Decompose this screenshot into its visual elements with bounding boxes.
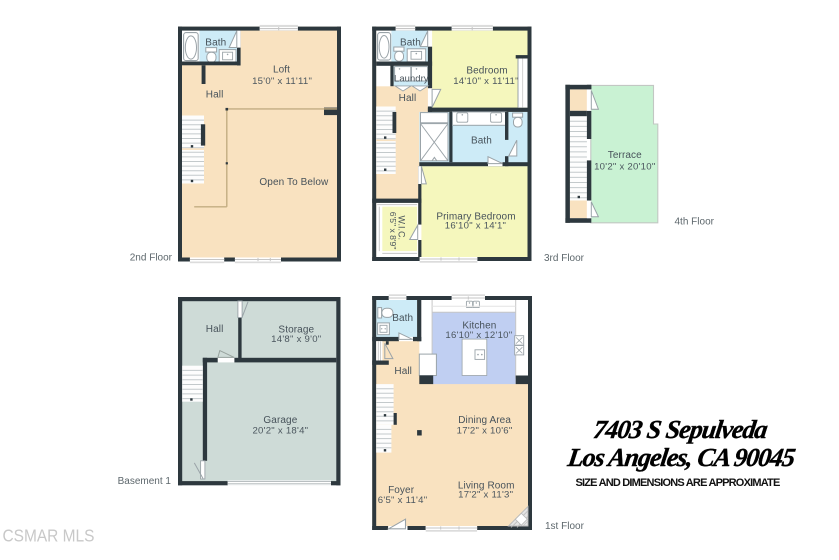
svg-text:SIZE AND DIMENSIONS ARE APPROX: SIZE AND DIMENSIONS ARE APPROXIMATE [575, 477, 780, 489]
svg-text:14'10" x 11'11": 14'10" x 11'11" [453, 76, 519, 87]
svg-text:Hall: Hall [394, 366, 412, 377]
svg-text:1st Floor: 1st Floor [545, 521, 585, 532]
svg-text:6'5" x 8'9": 6'5" x 8'9" [388, 212, 398, 250]
svg-text:CSMAR MLS: CSMAR MLS [3, 525, 95, 545]
svg-text:Terrace: Terrace [608, 150, 642, 161]
svg-text:16'10" x 14'1": 16'10" x 14'1" [445, 221, 506, 232]
svg-text:20'2" x 18'4": 20'2" x 18'4" [252, 426, 308, 437]
svg-text:Laundry: Laundry [394, 73, 429, 84]
svg-text:6'5" x 11'4": 6'5" x 11'4" [378, 495, 428, 506]
svg-text:Bedroom: Bedroom [466, 65, 507, 76]
svg-text:Bath: Bath [392, 313, 413, 324]
svg-text:Bath: Bath [471, 136, 492, 147]
svg-text:Hall: Hall [399, 93, 417, 104]
svg-text:Bath: Bath [400, 38, 421, 49]
svg-text:Hall: Hall [206, 90, 224, 101]
svg-text:Bath: Bath [205, 37, 226, 48]
svg-text:10'2" x 20'10": 10'2" x 20'10" [594, 162, 655, 173]
svg-text:4th Floor: 4th Floor [675, 216, 715, 227]
svg-text:Basement 1: Basement 1 [118, 476, 172, 487]
svg-text:15'0" x 11'11": 15'0" x 11'11" [252, 76, 312, 87]
svg-text:16'10" x 12'10": 16'10" x 12'10" [445, 330, 512, 341]
svg-text:17'2" x 11'3": 17'2" x 11'3" [458, 490, 513, 501]
svg-text:17'2" x 10'6": 17'2" x 10'6" [457, 425, 513, 436]
svg-text:7403 S Sepulveda: 7403 S Sepulveda [592, 415, 770, 444]
svg-text:Garage: Garage [263, 415, 297, 426]
svg-text:14'8" x 9'0": 14'8" x 9'0" [271, 334, 321, 345]
svg-text:Open To Below: Open To Below [259, 177, 329, 188]
svg-text:3rd Floor: 3rd Floor [544, 253, 585, 264]
svg-text:Hall: Hall [206, 324, 224, 335]
svg-text:Dining Area: Dining Area [458, 415, 511, 426]
svg-text:Loft: Loft [273, 64, 290, 75]
svg-text:Los Angeles, CA 90045: Los Angeles, CA 90045 [565, 443, 797, 472]
svg-text:2nd Floor: 2nd Floor [130, 252, 173, 263]
